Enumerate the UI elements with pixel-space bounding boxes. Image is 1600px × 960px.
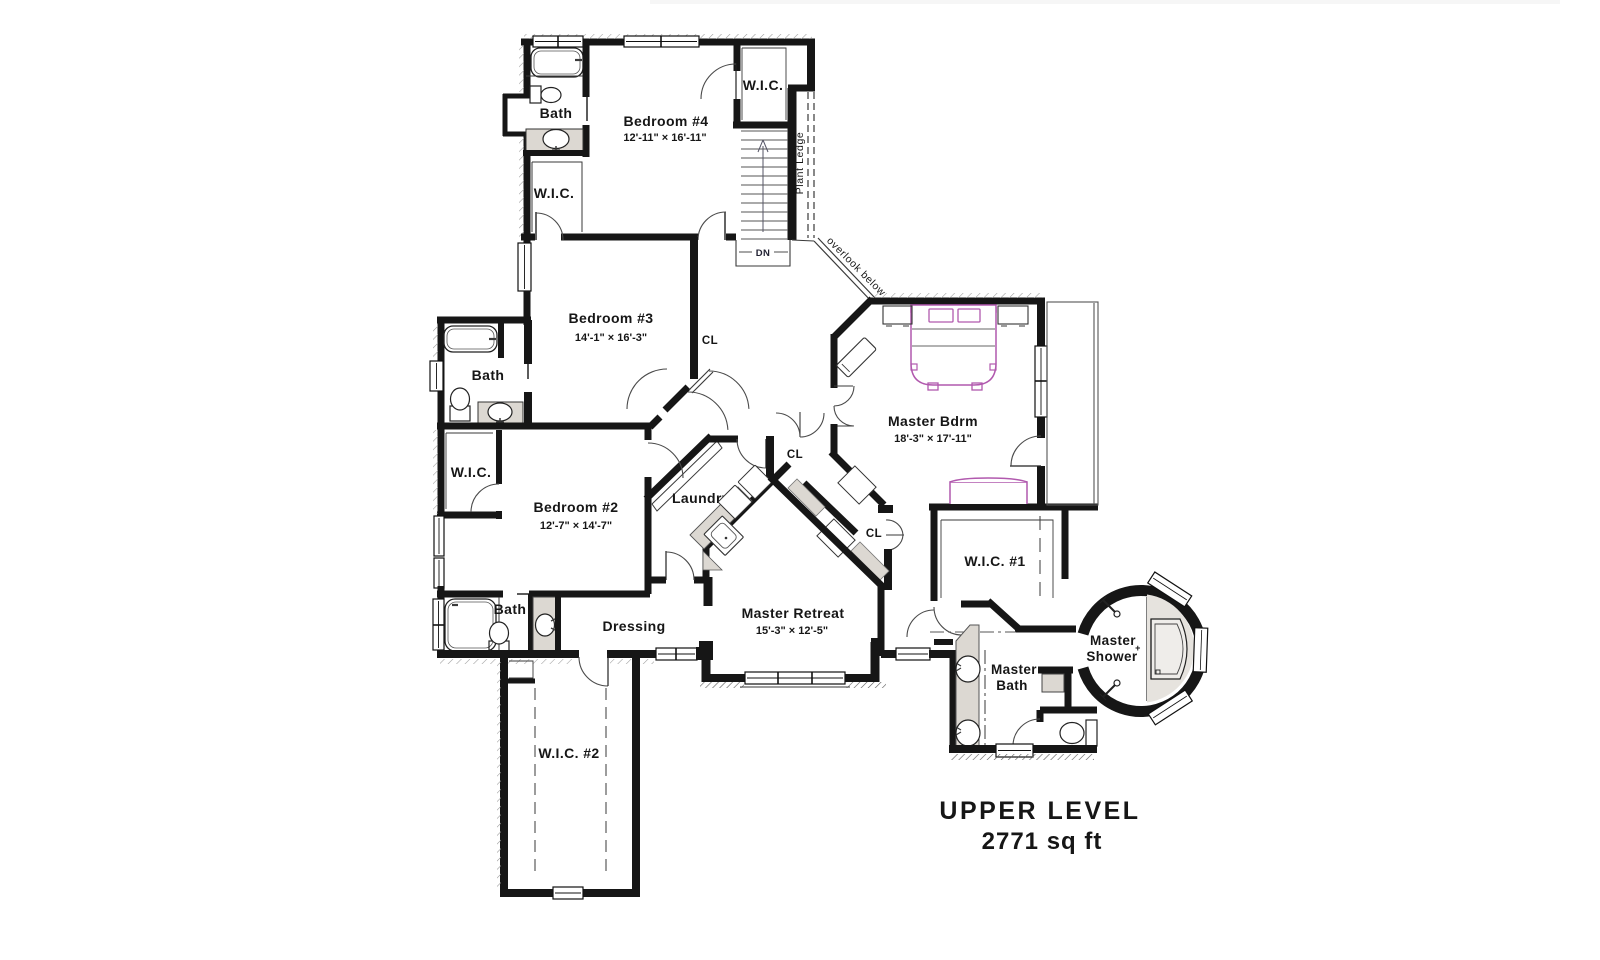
svg-text:18'-3" × 17'-11": 18'-3" × 17'-11" (894, 433, 972, 445)
svg-text:+: + (1135, 643, 1141, 653)
svg-text:Bath: Bath (494, 601, 527, 617)
svg-text:CL: CL (787, 449, 803, 461)
svg-text:DN: DN (756, 248, 771, 259)
svg-text:15'-3" × 12'-5": 15'-3" × 12'-5" (756, 625, 828, 637)
svg-text:CL: CL (702, 335, 718, 347)
svg-text:Bath: Bath (540, 105, 573, 121)
svg-text:Bath: Bath (472, 367, 505, 383)
svg-text:2771 sq ft: 2771 sq ft (982, 828, 1103, 855)
svg-text:12'-7" × 14'-7": 12'-7" × 14'-7" (540, 520, 612, 532)
svg-text:W.I.C. #1: W.I.C. #1 (964, 553, 1025, 569)
svg-text:12'-11" × 16'-11": 12'-11" × 16'-11" (623, 132, 706, 144)
svg-text:Master: Master (1090, 633, 1136, 648)
svg-text:Plant Ledge: Plant Ledge (794, 132, 806, 195)
svg-text:Master Bdrm: Master Bdrm (888, 413, 978, 429)
svg-text:Dressing: Dressing (602, 618, 665, 634)
svg-text:W.I.C.: W.I.C. (743, 77, 784, 93)
svg-text:CL: CL (866, 528, 882, 540)
svg-text:W.I.C.: W.I.C. (451, 464, 492, 480)
svg-text:W.I.C.: W.I.C. (534, 185, 575, 201)
svg-text:Shower: Shower (1086, 649, 1138, 664)
svg-text:14'-1" × 16'-3": 14'-1" × 16'-3" (575, 332, 647, 344)
svg-text:Bedroom #2: Bedroom #2 (534, 499, 619, 515)
svg-text:Master: Master (991, 662, 1037, 677)
svg-text:Bath: Bath (996, 678, 1028, 693)
svg-text:W.I.C. #2: W.I.C. #2 (538, 745, 599, 761)
svg-text:UPPER LEVEL: UPPER LEVEL (939, 797, 1140, 825)
svg-text:Bedroom #4: Bedroom #4 (624, 113, 709, 129)
svg-text:Bedroom #3: Bedroom #3 (569, 310, 654, 326)
svg-text:Master Retreat: Master Retreat (742, 605, 845, 621)
